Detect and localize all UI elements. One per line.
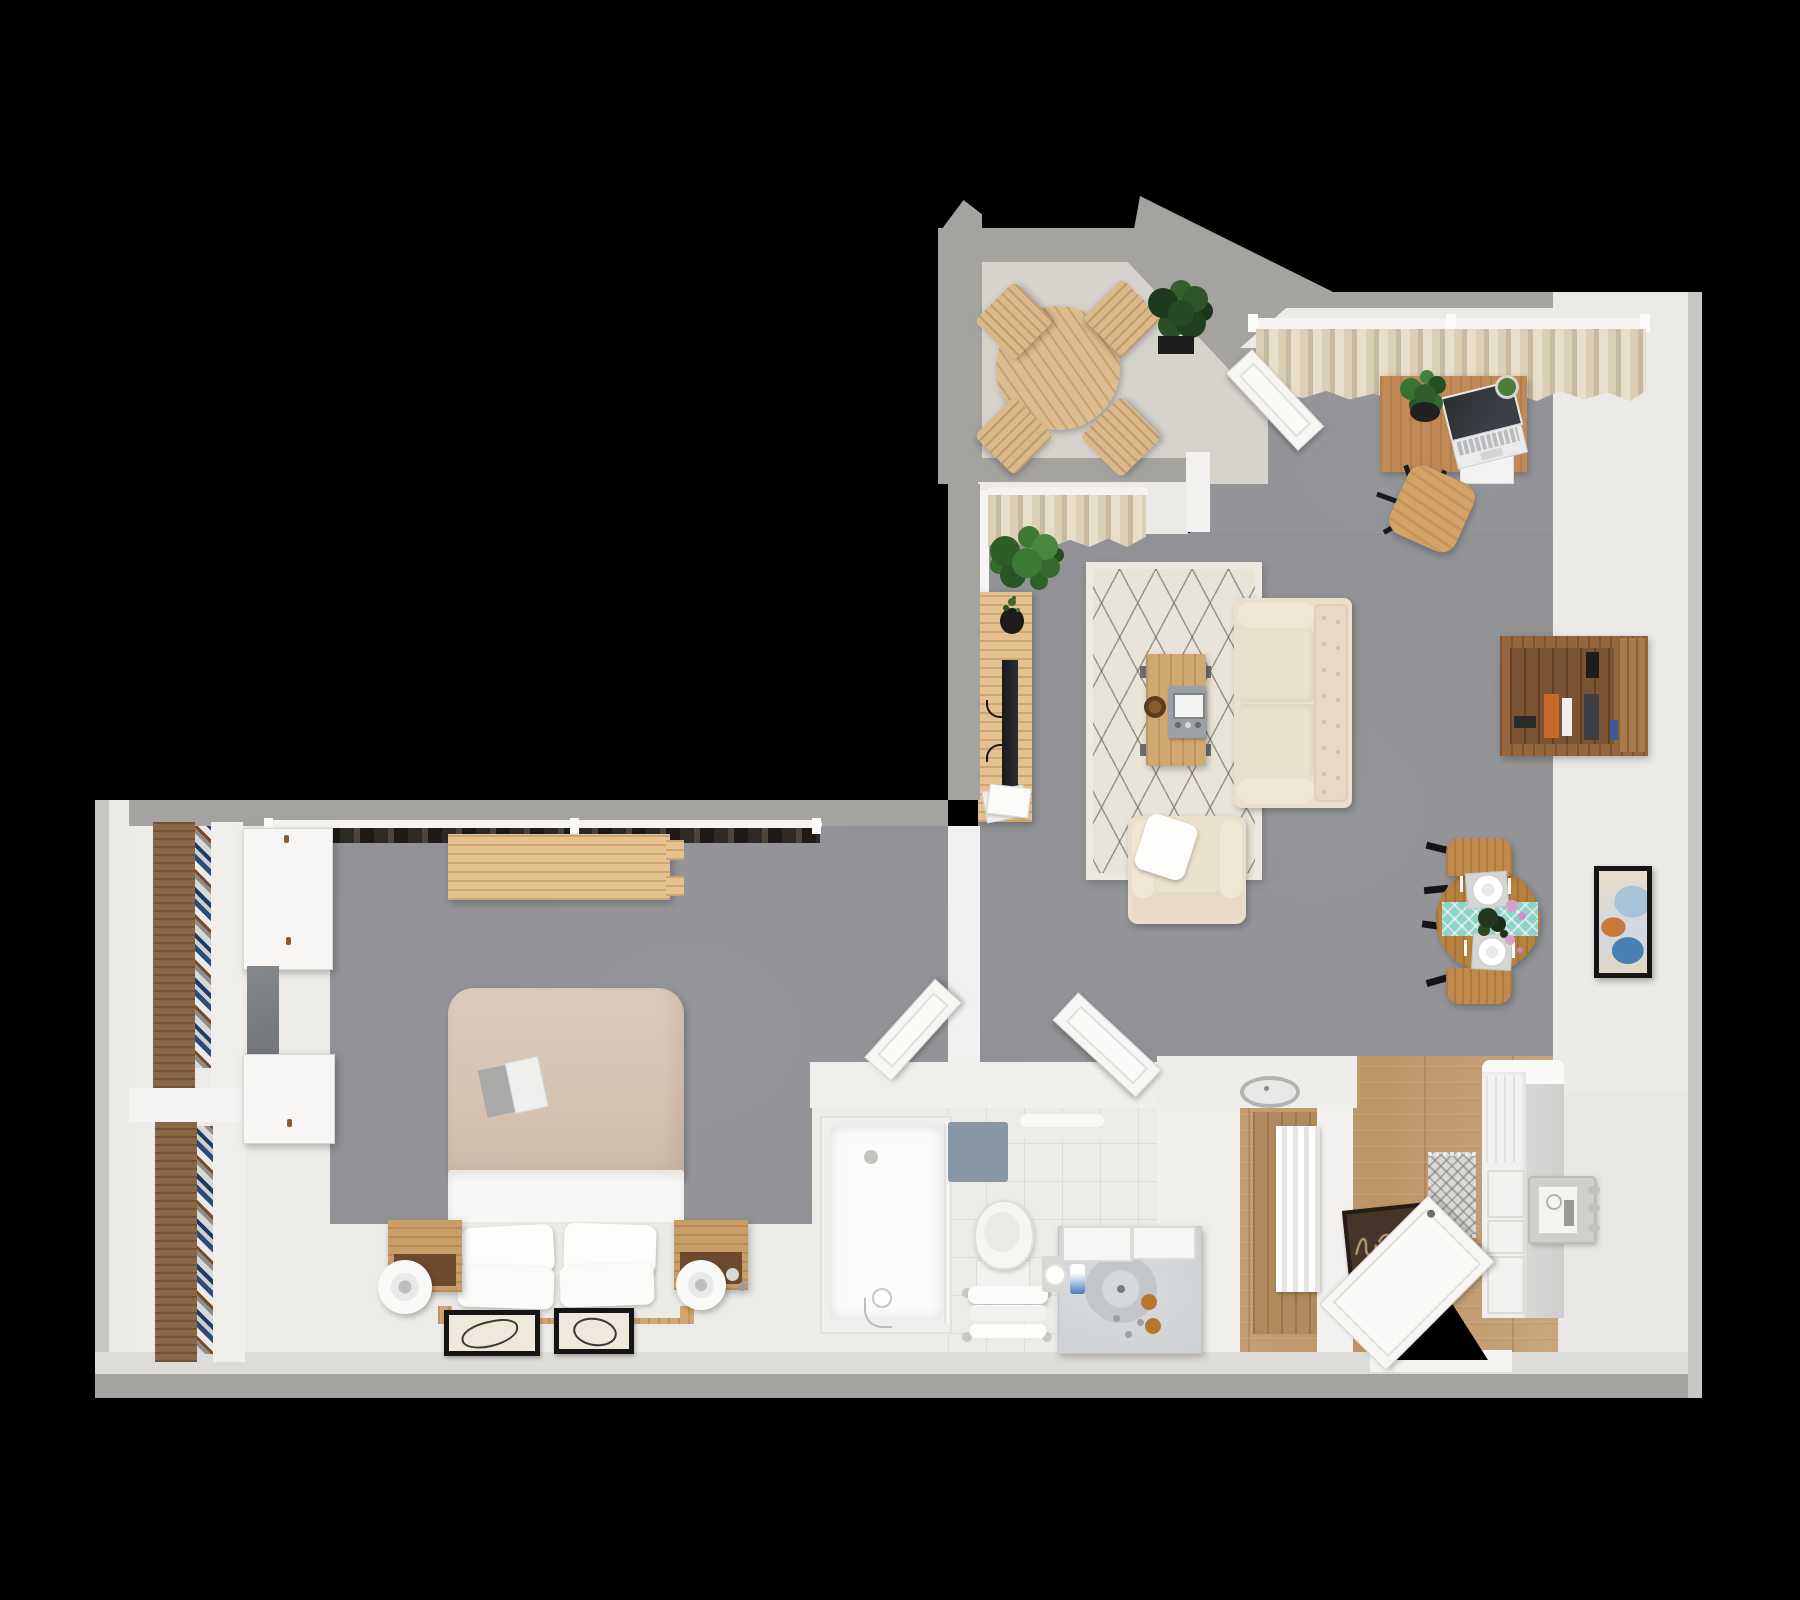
- wall-art-image: [1599, 871, 1647, 973]
- cutlery: [1460, 876, 1463, 892]
- hanging-towels: [1020, 1114, 1104, 1127]
- bench-towels: [968, 1286, 1048, 1304]
- tv: [1002, 660, 1018, 792]
- balcony-top-wall: [938, 228, 1150, 262]
- living-west-wall-lower: [948, 826, 980, 1066]
- sofa-seat-cushion: [1240, 704, 1314, 776]
- plate-top: [1472, 874, 1504, 906]
- wardrobe-upper: [243, 828, 333, 970]
- coffee-table-tray: [1168, 686, 1206, 738]
- ring-center-dot: [1264, 1086, 1269, 1091]
- wall-art-frame: [1594, 866, 1652, 978]
- coffee-table-bowl: [1144, 696, 1166, 718]
- floorplan-render: [0, 0, 1800, 1600]
- closet-unit-top-panel: [153, 822, 195, 1088]
- book: [1562, 698, 1572, 736]
- faucet-handles: [1113, 1315, 1120, 1322]
- bed-pillow: [457, 1264, 554, 1309]
- bed-pillow: [559, 1262, 654, 1307]
- cabinet-slats: [1486, 1076, 1522, 1162]
- frame-art: [559, 1313, 629, 1349]
- toilet-paper-holder: [1042, 1256, 1064, 1292]
- closet-front-strip-top: [211, 822, 243, 1092]
- shower: [820, 1116, 952, 1334]
- utility-sink-drain: [1546, 1194, 1562, 1210]
- balcony-plant-pot: [1158, 336, 1194, 354]
- bath-mat: [948, 1122, 1008, 1182]
- bed-sheet-fold: [448, 1170, 684, 1228]
- wardrobe-gray-panel: [247, 966, 279, 1056]
- bedroom-wall-shelf: [448, 834, 670, 900]
- shelf-bracket: [666, 876, 684, 896]
- shower-hose: [864, 1298, 892, 1328]
- sofa-armrest-top: [1238, 602, 1314, 628]
- sofa-back-cushions: [1314, 604, 1348, 802]
- hall-closet-curtain: [1276, 1126, 1320, 1292]
- wardrobe-knob: [286, 937, 291, 945]
- wardrobe-knob: [287, 1119, 292, 1127]
- dining-chair-bottom: [1446, 968, 1512, 1004]
- utility-sink: [1528, 1176, 1596, 1244]
- bookshelf-front-edge: [1618, 638, 1646, 752]
- wardrobe-knob: [284, 835, 289, 843]
- lamp-right: [676, 1260, 726, 1310]
- mirror-cabinet-left: [1062, 1226, 1132, 1262]
- armchair-arm-right: [1220, 820, 1242, 898]
- closet-divider: [129, 1088, 243, 1122]
- left-wall-outer-edge: [95, 800, 109, 1376]
- magazines: [982, 784, 1030, 822]
- living-west-wall-upper: [948, 484, 980, 800]
- book: [1544, 694, 1559, 738]
- book: [1584, 694, 1599, 740]
- frame-line-art: [459, 1315, 521, 1352]
- sofa-tufting: [1322, 616, 1326, 620]
- cabinet-panel: [1487, 1220, 1525, 1254]
- book: [1514, 716, 1536, 728]
- bench-leg: [962, 1332, 972, 1342]
- centerpiece-plant: [1478, 908, 1498, 928]
- armchair: [1128, 816, 1246, 924]
- floor-frame-right: [554, 1308, 634, 1354]
- desk-cactus: [1498, 378, 1516, 396]
- sofa: [1234, 598, 1352, 808]
- balcony-door-frame-post: [1186, 452, 1210, 532]
- utility-sink-slot: [1564, 1200, 1574, 1226]
- toilet-paper-roll: [1044, 1264, 1066, 1286]
- cabinet-panel: [1487, 1256, 1525, 1314]
- towel-bench: [962, 1280, 1054, 1346]
- curtain-rod-window: [988, 487, 1148, 496]
- floor-frame-left: [444, 1310, 540, 1356]
- centerpiece-flowers: [1506, 900, 1518, 912]
- closet-unit-top-stacks: [195, 826, 211, 1068]
- magazine: [986, 784, 1031, 819]
- desk-plant-pot: [1410, 402, 1440, 422]
- book: [1586, 652, 1599, 678]
- shelf-bracket: [666, 840, 684, 860]
- toilet-lid-line: [984, 1212, 1020, 1252]
- closet-front-strip-bottom: [213, 1122, 245, 1362]
- sofa-armrest-bottom: [1238, 778, 1314, 804]
- wardrobe-lower: [243, 1054, 335, 1144]
- tray-screen: [1173, 693, 1205, 719]
- console-plant-leaves: [1008, 598, 1016, 606]
- right-wall-outer-edge: [1688, 292, 1702, 1398]
- fiddle-leaf-plant: [1012, 548, 1042, 578]
- closet-unit-bottom-stacks: [197, 1126, 213, 1354]
- left-wall: [109, 800, 129, 1376]
- tall-cabinet-front: [1482, 1072, 1526, 1318]
- lamp-left: [378, 1260, 432, 1314]
- curtains-window: [988, 495, 1146, 547]
- sofa-seat-cushion: [1240, 630, 1314, 702]
- decor-spheres: [726, 1268, 739, 1281]
- soap-bottle: [1141, 1294, 1157, 1310]
- plate-bottom: [1477, 937, 1507, 967]
- half-wall-ring: [1240, 1076, 1300, 1108]
- tray-knobs: [1175, 722, 1181, 728]
- shower-drain: [864, 1150, 878, 1164]
- frame-line-art: [571, 1315, 619, 1350]
- frame-art: [449, 1315, 535, 1351]
- mirror-cabinet-right: [1132, 1226, 1196, 1260]
- closet-unit-bottom-panel: [155, 1122, 197, 1362]
- sink-drain: [1117, 1285, 1125, 1293]
- wall-bookshelf: [1500, 636, 1648, 756]
- bottom-wall-outer: [95, 1374, 1688, 1398]
- toothbrush-cup: [1070, 1264, 1085, 1294]
- balcony-bottom-wall-top: [948, 458, 1188, 484]
- cabinet-panel: [1487, 1170, 1525, 1218]
- balcony-plant: [1168, 300, 1194, 326]
- faucet-handle: [1588, 1186, 1600, 1194]
- console-plant-pot: [1000, 608, 1024, 634]
- toilet: [974, 1200, 1030, 1292]
